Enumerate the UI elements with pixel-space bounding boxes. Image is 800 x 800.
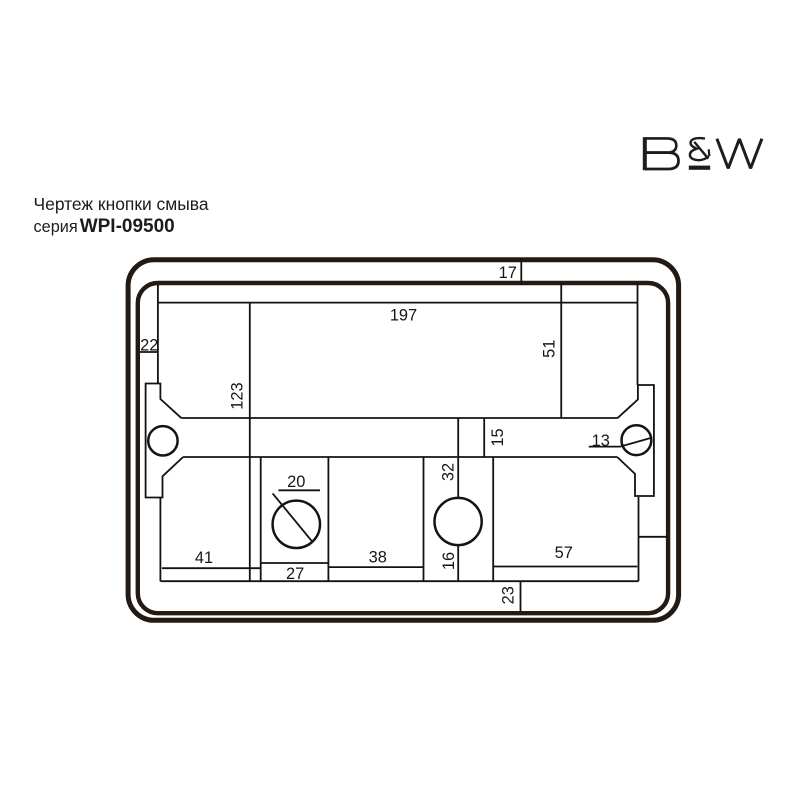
- svg-text:51: 51: [541, 340, 559, 358]
- svg-text:17: 17: [499, 264, 517, 282]
- svg-text:27: 27: [286, 565, 304, 583]
- svg-text:41: 41: [195, 549, 213, 567]
- svg-text:57: 57: [555, 544, 573, 562]
- svg-text:123: 123: [228, 382, 246, 409]
- svg-text:13: 13: [592, 432, 610, 450]
- svg-text:15: 15: [489, 428, 507, 446]
- svg-text:Чертеж кнопки смыва: Чертеж кнопки смыва: [34, 194, 209, 214]
- svg-text:20: 20: [287, 473, 305, 491]
- svg-text:32: 32: [439, 463, 457, 481]
- svg-text:22: 22: [140, 337, 158, 355]
- svg-text:серия WPI-09500: серия WPI-09500: [34, 216, 175, 237]
- svg-text:197: 197: [390, 307, 417, 325]
- svg-text:16: 16: [440, 552, 458, 570]
- svg-text:38: 38: [369, 549, 387, 567]
- svg-text:23: 23: [499, 586, 517, 604]
